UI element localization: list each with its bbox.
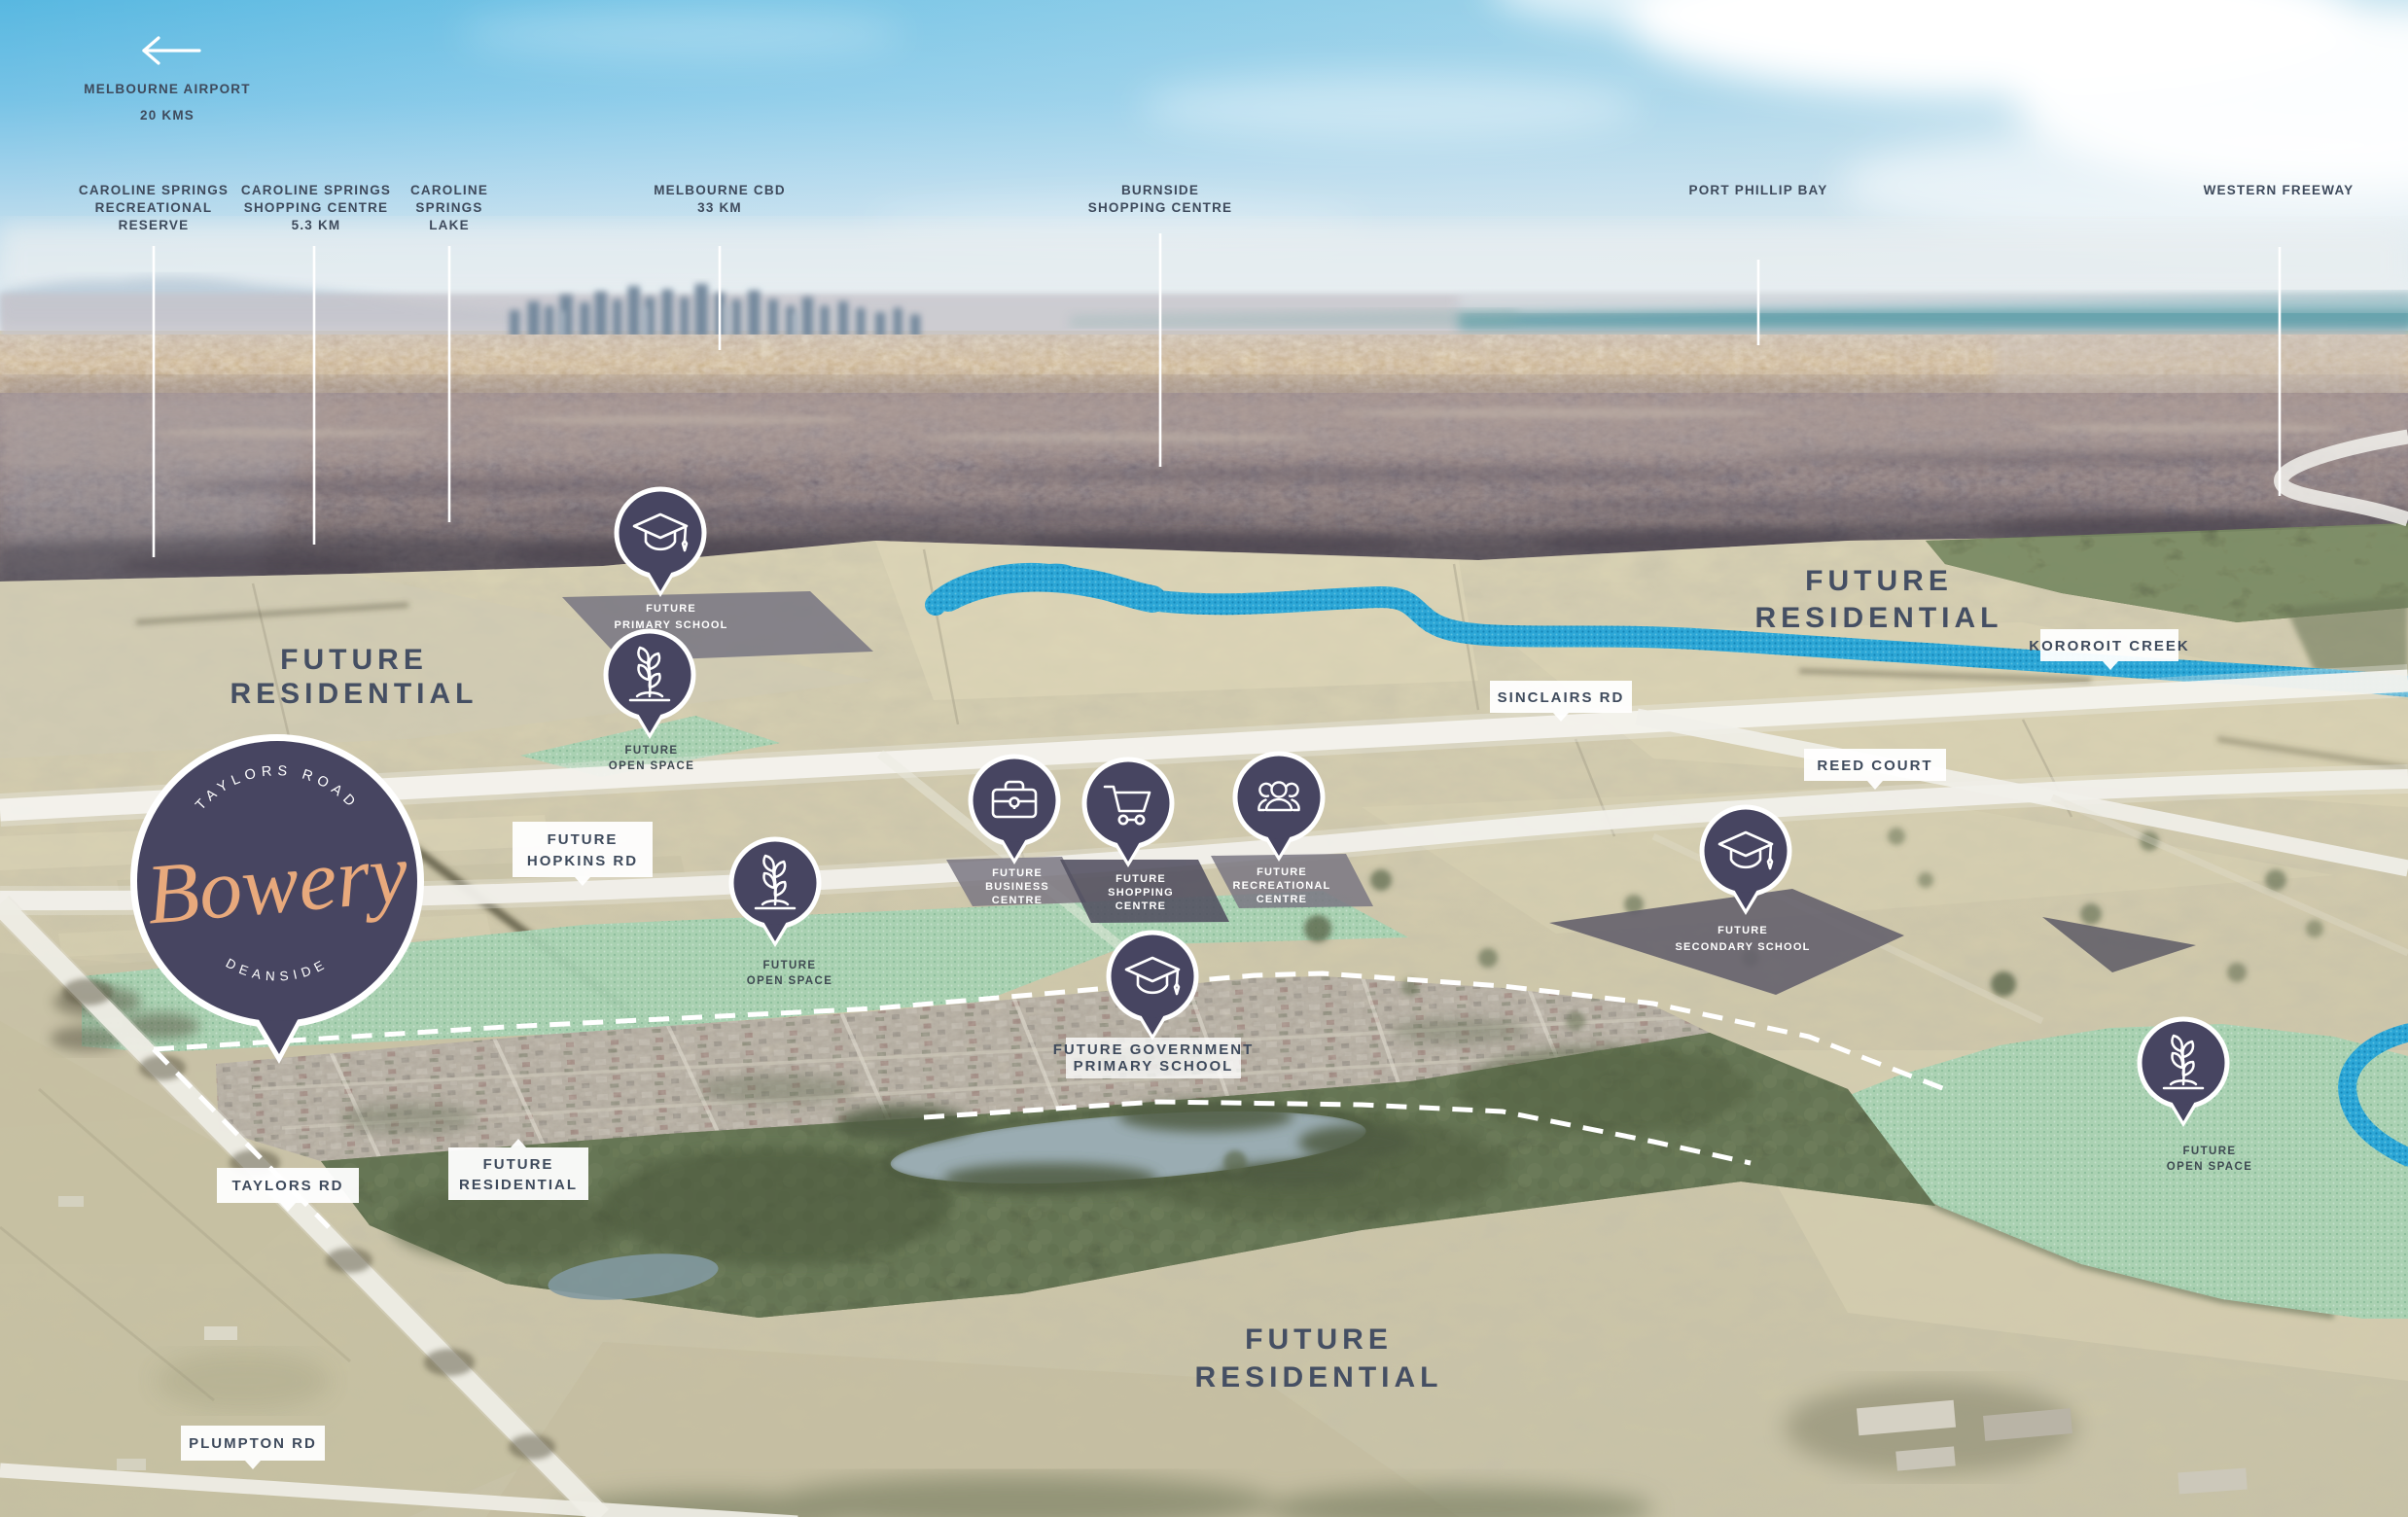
svg-text:FUTURE GOVERNMENT: FUTURE GOVERNMENT [1053,1041,1255,1058]
svg-text:FUTURE: FUTURE [1717,925,1768,936]
svg-text:OPEN SPACE: OPEN SPACE [747,975,833,987]
svg-text:FUTURE: FUTURE [1115,873,1166,885]
svg-text:SHOPPING CENTRE: SHOPPING CENTRE [244,200,389,215]
svg-text:PORT PHILLIP BAY: PORT PHILLIP BAY [1689,183,1828,197]
svg-text:KOROROIT CREEK: KOROROIT CREEK [2029,638,2190,654]
svg-text:RESIDENTIAL: RESIDENTIAL [1194,1361,1442,1394]
svg-text:FUTURE: FUTURE [992,867,1043,879]
svg-text:SPRINGS: SPRINGS [415,200,482,215]
svg-text:FUTURE: FUTURE [1245,1323,1393,1356]
svg-text:RESIDENTIAL: RESIDENTIAL [1754,602,2002,634]
svg-text:OPEN SPACE: OPEN SPACE [2167,1161,2253,1173]
svg-text:FUTURE: FUTURE [1805,565,1953,597]
svg-text:LAKE: LAKE [429,218,470,232]
svg-text:RESERVE: RESERVE [119,218,190,232]
svg-text:REED COURT: REED COURT [1817,758,1932,774]
svg-text:WESTERN FREEWAY: WESTERN FREEWAY [2204,183,2355,197]
svg-text:FUTURE: FUTURE [483,1156,554,1173]
svg-text:CENTRE: CENTRE [1115,900,1166,912]
svg-text:HOPKINS RD: HOPKINS RD [527,853,638,869]
svg-text:MELBOURNE AIRPORT: MELBOURNE AIRPORT [84,82,250,96]
svg-text:PRIMARY SCHOOL: PRIMARY SCHOOL [614,619,727,631]
svg-text:TAYLORS RD: TAYLORS RD [231,1178,343,1194]
svg-text:SECONDARY SCHOOL: SECONDARY SCHOOL [1676,941,1811,953]
svg-text:FUTURE: FUTURE [280,644,428,676]
svg-text:CAROLINE: CAROLINE [410,183,488,197]
svg-text:BURNSIDE: BURNSIDE [1121,183,1199,197]
svg-text:20 KMS: 20 KMS [140,108,195,123]
svg-text:33 KM: 33 KM [697,200,742,215]
svg-text:OPEN SPACE: OPEN SPACE [609,760,695,772]
svg-text:PLUMPTON RD: PLUMPTON RD [189,1435,317,1452]
svg-text:RESIDENTIAL: RESIDENTIAL [459,1177,578,1193]
svg-text:CAROLINE SPRINGS: CAROLINE SPRINGS [79,183,229,197]
svg-text:BUSINESS: BUSINESS [985,881,1049,893]
svg-text:CENTRE: CENTRE [1257,894,1307,905]
svg-text:FUTURE: FUTURE [624,745,678,757]
svg-text:FUTURE: FUTURE [1257,866,1307,878]
svg-text:MELBOURNE CBD: MELBOURNE CBD [654,183,786,197]
svg-text:FUTURE: FUTURE [2182,1146,2236,1157]
svg-text:RESIDENTIAL: RESIDENTIAL [230,678,478,710]
svg-text:5.3 KM: 5.3 KM [292,218,341,232]
svg-text:PRIMARY SCHOOL: PRIMARY SCHOOL [1074,1058,1234,1075]
svg-text:RECREATIONAL: RECREATIONAL [1233,880,1331,892]
svg-text:CAROLINE SPRINGS: CAROLINE SPRINGS [241,183,391,197]
svg-text:FUTURE: FUTURE [548,831,619,848]
svg-text:FUTURE: FUTURE [762,960,816,971]
svg-text:RECREATIONAL: RECREATIONAL [95,200,213,215]
svg-text:FUTURE: FUTURE [646,603,696,615]
svg-text:SHOPPING: SHOPPING [1108,887,1174,899]
svg-text:SINCLAIRS RD: SINCLAIRS RD [1498,689,1625,706]
svg-text:CENTRE: CENTRE [992,895,1043,906]
svg-text:SHOPPING CENTRE: SHOPPING CENTRE [1088,200,1233,215]
